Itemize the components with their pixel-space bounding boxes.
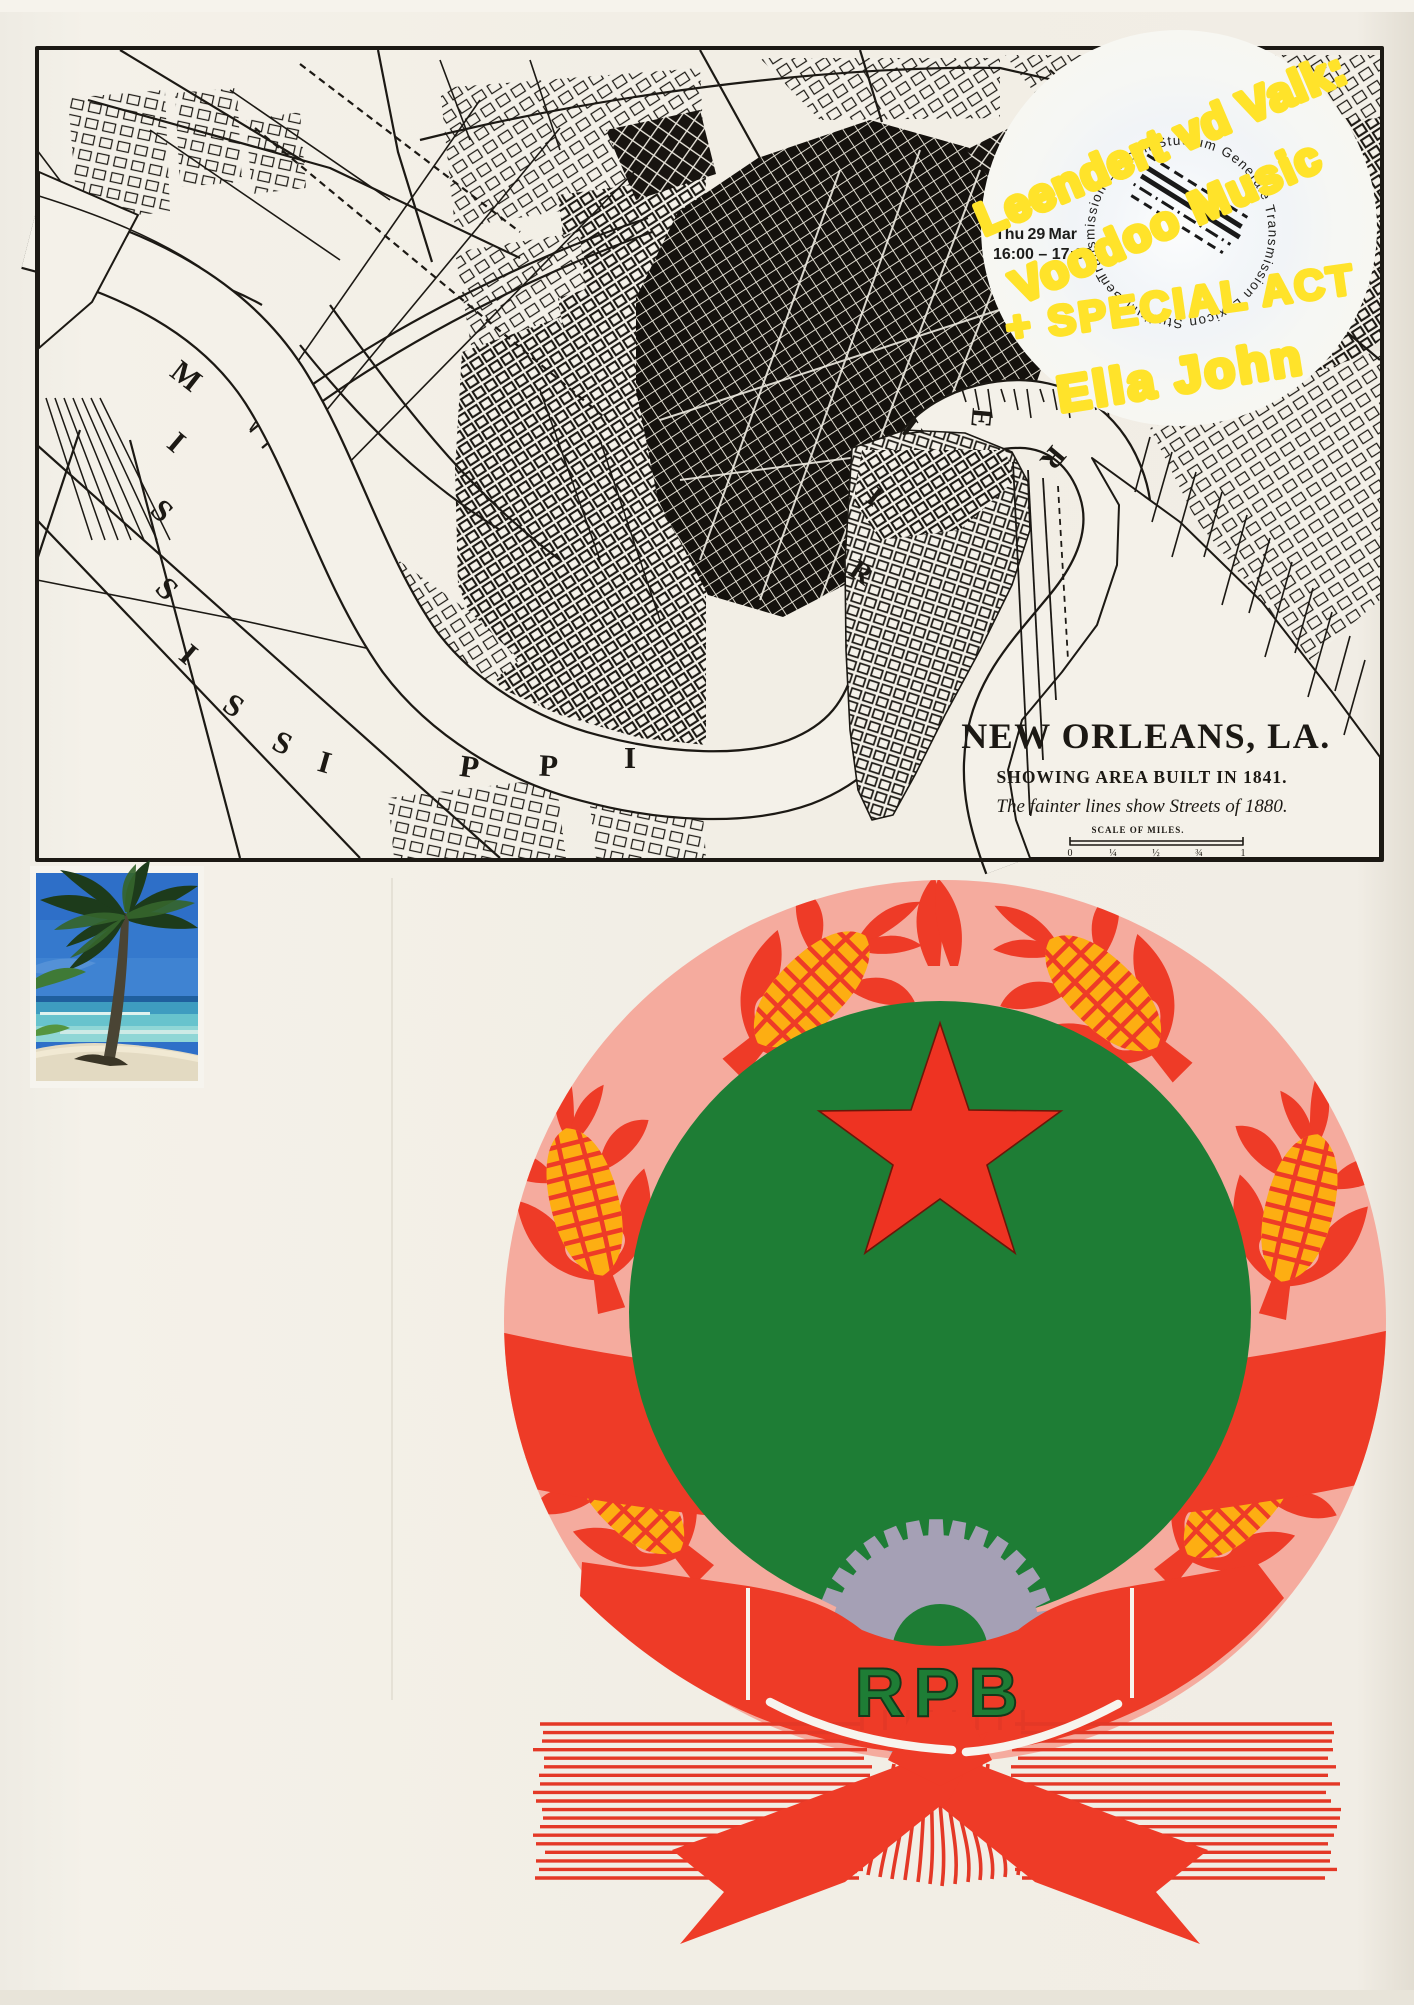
svg-text:SHOWING AREA BUILT IN 1841.: SHOWING AREA BUILT IN 1841. bbox=[996, 767, 1287, 787]
svg-text:The fainter lines show Streets: The fainter lines show Streets of 1880. bbox=[996, 796, 1287, 817]
svg-text:RPB: RPB bbox=[855, 1654, 1028, 1731]
svg-text:SCALE OF MILES.: SCALE OF MILES. bbox=[1092, 825, 1185, 835]
svg-text:I: I bbox=[624, 740, 636, 775]
svg-text:E: E bbox=[964, 407, 998, 429]
svg-text:½: ½ bbox=[1152, 848, 1160, 859]
svg-text:P: P bbox=[538, 748, 559, 784]
svg-text:¾: ¾ bbox=[1195, 848, 1203, 859]
svg-text:0: 0 bbox=[1068, 848, 1073, 859]
svg-text:¼: ¼ bbox=[1109, 848, 1117, 859]
svg-text:1: 1 bbox=[1241, 848, 1246, 859]
svg-text:NEW ORLEANS, LA.: NEW ORLEANS, LA. bbox=[961, 716, 1330, 756]
